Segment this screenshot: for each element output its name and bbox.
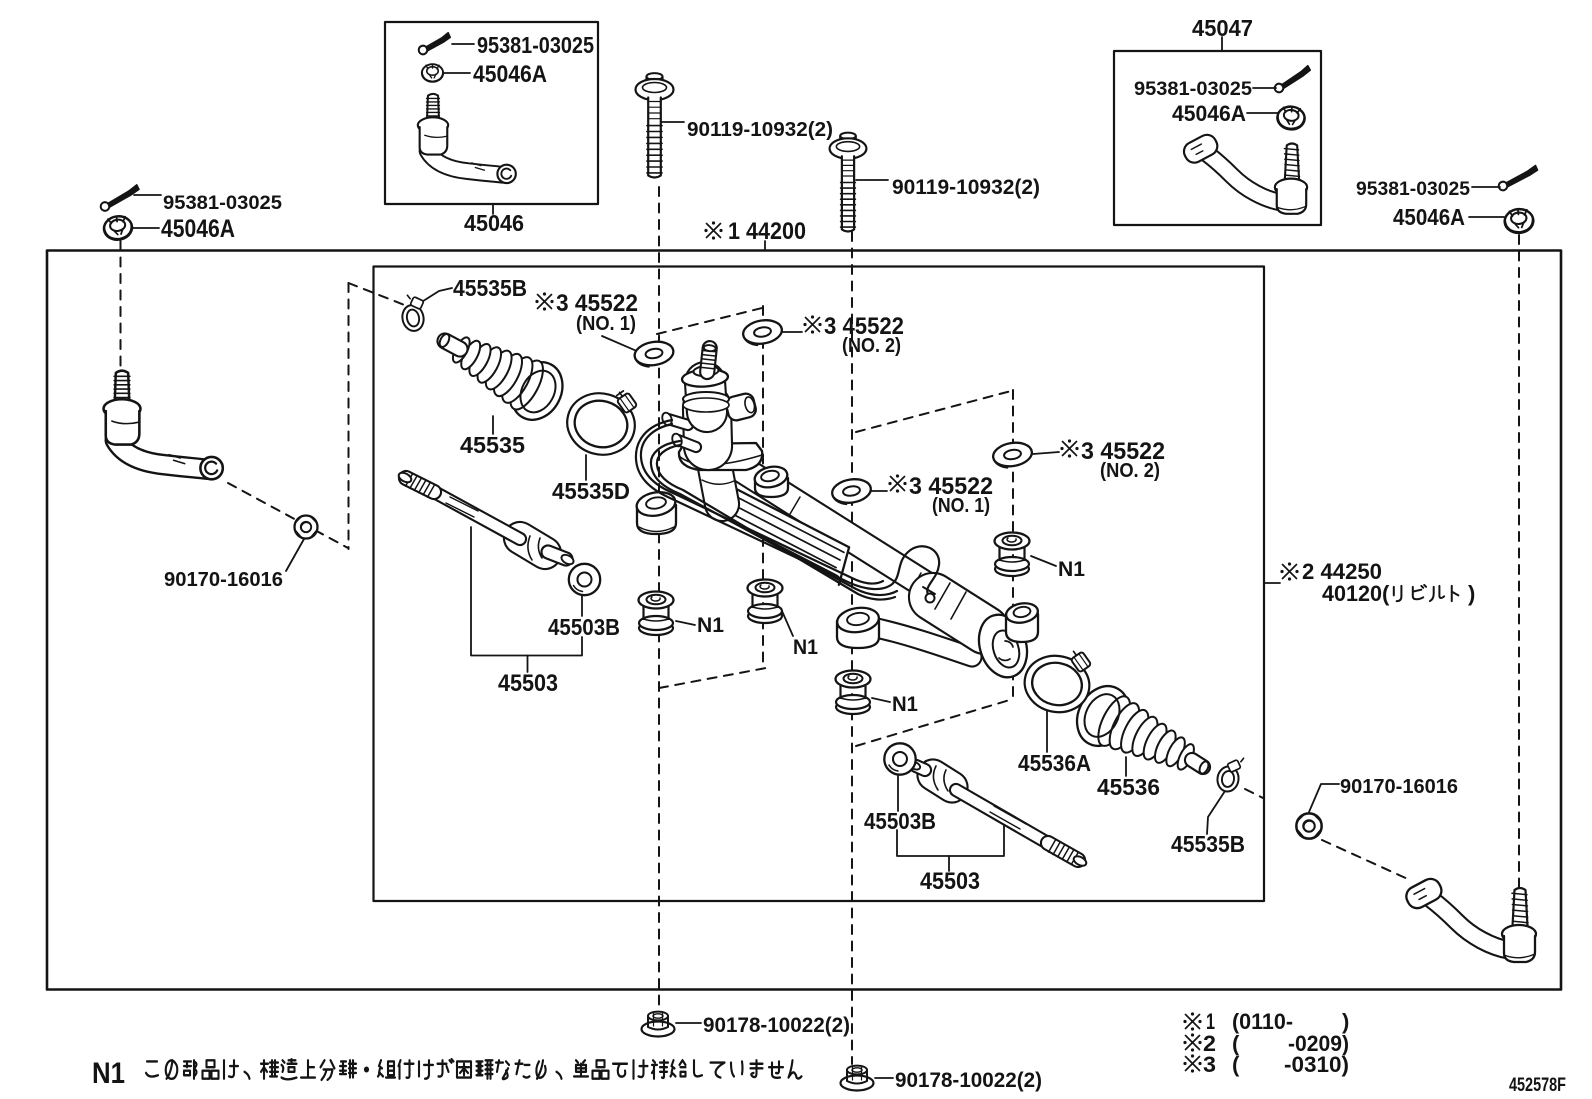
- svg-text:N1: N1: [892, 693, 918, 716]
- svg-text:95381-03025: 95381-03025: [477, 32, 594, 58]
- svg-text:90170-16016: 90170-16016: [164, 569, 283, 591]
- svg-text:95381-03025: 95381-03025: [1134, 79, 1252, 100]
- svg-text:45535B: 45535B: [1171, 831, 1245, 857]
- svg-text:-0310): -0310): [1284, 1052, 1349, 1077]
- svg-text:45535: 45535: [460, 432, 525, 458]
- svg-text:452578F: 452578F: [1509, 1075, 1566, 1096]
- svg-text:(: (: [1232, 1052, 1240, 1077]
- svg-text:45503: 45503: [920, 868, 980, 895]
- svg-text:N1: N1: [793, 636, 818, 659]
- svg-text:95381-03025: 95381-03025: [163, 193, 282, 214]
- svg-text:45046A: 45046A: [1172, 101, 1246, 126]
- svg-text:(NO. 2): (NO. 2): [842, 335, 901, 357]
- svg-text:45503B: 45503B: [548, 614, 620, 640]
- svg-text:90178-10022(2): 90178-10022(2): [703, 1014, 850, 1037]
- svg-text:45046A: 45046A: [473, 61, 547, 88]
- svg-text:(NO. 2): (NO. 2): [1100, 460, 1160, 482]
- svg-text:90119-10932(2): 90119-10932(2): [687, 118, 833, 141]
- svg-text:(NO. 1): (NO. 1): [576, 313, 636, 335]
- svg-text:45046A: 45046A: [161, 215, 235, 243]
- svg-text:90178-10022(2): 90178-10022(2): [895, 1069, 1042, 1092]
- svg-text:1 44200: 1 44200: [728, 218, 806, 245]
- svg-text:45046: 45046: [464, 210, 524, 236]
- svg-text:(: (: [1382, 581, 1390, 606]
- svg-text:45535D: 45535D: [552, 478, 630, 504]
- svg-text:45536A: 45536A: [1018, 750, 1091, 776]
- svg-text:90170-16016: 90170-16016: [1340, 776, 1458, 798]
- svg-text:45046A: 45046A: [1393, 204, 1465, 230]
- svg-text:45503: 45503: [498, 670, 558, 697]
- svg-text:45535B: 45535B: [453, 275, 527, 301]
- svg-text:N1: N1: [697, 614, 724, 637]
- svg-text:45047: 45047: [1192, 15, 1253, 41]
- svg-text:(NO. 1): (NO. 1): [932, 495, 990, 517]
- svg-text:40120: 40120: [1322, 581, 1382, 606]
- svg-text:N1: N1: [1058, 558, 1085, 581]
- svg-text:3: 3: [1203, 1052, 1216, 1077]
- svg-text:45503B: 45503B: [864, 808, 936, 834]
- svg-text:90119-10932(2): 90119-10932(2): [892, 176, 1040, 199]
- svg-text:95381-03025: 95381-03025: [1356, 179, 1470, 200]
- svg-text:N1: N1: [92, 1057, 125, 1090]
- svg-text:(0110-: (0110-: [1232, 1009, 1293, 1034]
- svg-text:45536: 45536: [1097, 774, 1160, 800]
- svg-text:): ): [1468, 581, 1475, 606]
